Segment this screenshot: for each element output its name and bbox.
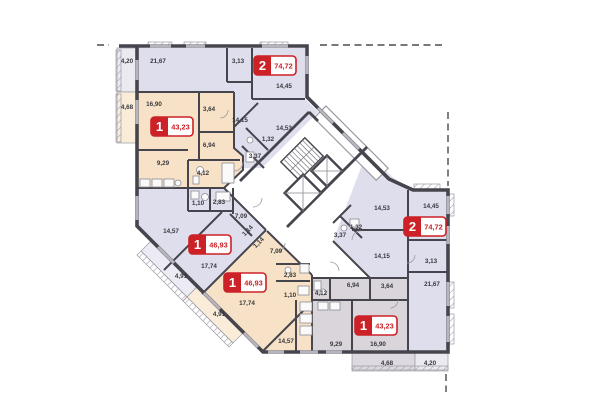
badge-room-count: 1 (156, 119, 163, 134)
badge-area-value: 43,23 (171, 123, 190, 132)
room-area-label: 2,83 (213, 199, 226, 206)
badge-area-value: 43,23 (375, 322, 394, 331)
room-area-label: 3,64 (203, 106, 216, 113)
room-area-label: 14,15 (232, 117, 248, 124)
room-area-label: 7,09 (235, 213, 248, 220)
badge-room-count: 1 (194, 237, 201, 252)
room-area-label: 16,90 (370, 341, 386, 348)
room-area-label: 14,15 (374, 253, 390, 260)
room-area-label: 4,91 (175, 273, 188, 280)
room-area-label: 16,90 (146, 101, 162, 108)
room-area-label: 1,32 (350, 224, 363, 231)
apartment-badge[interactable]: 2 74,72 (404, 217, 446, 236)
room-area-label: 14,45 (423, 203, 439, 210)
room-area-label: 1,10 (192, 200, 205, 207)
room-area-label: 4,68 (121, 104, 134, 111)
floor-plan-canvas: 4,20 21,67 3,13 14,45 14,15 14,53 1,32 3… (0, 0, 602, 400)
badge-room-count: 2 (259, 58, 266, 73)
room-area-label: 14,57 (278, 338, 294, 345)
apartment-badge[interactable]: 1 46,93 (189, 235, 231, 254)
apartment-badge[interactable]: 1 43,23 (355, 316, 397, 335)
room-area-label: 4,91 (213, 311, 226, 318)
room-area-label: 14,45 (276, 83, 292, 90)
room-area-label: 7,09 (270, 248, 283, 255)
room-area-label: 14,53 (276, 125, 292, 132)
apartment-badge[interactable]: 2 74,72 (254, 56, 296, 75)
room-area-label: 9,29 (330, 341, 343, 348)
room-area-label: 3,37 (334, 232, 347, 239)
room-area-label: 6,94 (347, 282, 360, 289)
badge-room-count: 1 (229, 275, 236, 290)
room-area-label: 4,12 (315, 290, 328, 297)
badge-area-value: 74,72 (274, 62, 293, 71)
elevator-icon (285, 175, 322, 212)
room-area-label: 21,67 (150, 58, 166, 65)
room-area-label: 6,94 (203, 142, 216, 149)
room-area-label: 3,13 (232, 58, 245, 65)
room-area-label: 4,20 (121, 58, 134, 65)
room-area-label: 9,29 (157, 160, 170, 167)
badge-area-value: 46,93 (209, 241, 228, 250)
room-area-label: 14,57 (163, 228, 179, 235)
badge-area-value: 46,93 (244, 279, 263, 288)
room-area-label: 4,12 (197, 170, 210, 177)
room-area-label: 1,10 (284, 292, 297, 299)
room-area-label: 17,74 (239, 300, 255, 307)
balcony-railing (116, 94, 121, 142)
badge-room-count: 2 (409, 219, 416, 234)
room-area-label: 4,68 (381, 360, 394, 367)
room-area-label: 17,74 (201, 263, 217, 270)
room-area-label: 2,83 (284, 272, 297, 279)
room-area-label: 3,13 (425, 258, 438, 265)
badge-room-count: 1 (360, 318, 367, 333)
room-area-label: 4,20 (424, 360, 437, 367)
room-area-label: 3,37 (249, 153, 262, 160)
room-area-label: 14,53 (374, 205, 390, 212)
balcony-railing (116, 50, 121, 91)
room-area-label: 21,67 (424, 281, 440, 288)
badge-area-value: 74,72 (424, 223, 443, 232)
apartment-badge[interactable]: 1 46,93 (224, 273, 266, 292)
floor-plan: 4,20 21,67 3,13 14,45 14,15 14,53 1,32 3… (0, 0, 602, 400)
room-area-label: 1,32 (262, 136, 275, 143)
room-area-label: 3,64 (381, 283, 394, 290)
apartment-badge[interactable]: 1 43,23 (151, 117, 193, 136)
